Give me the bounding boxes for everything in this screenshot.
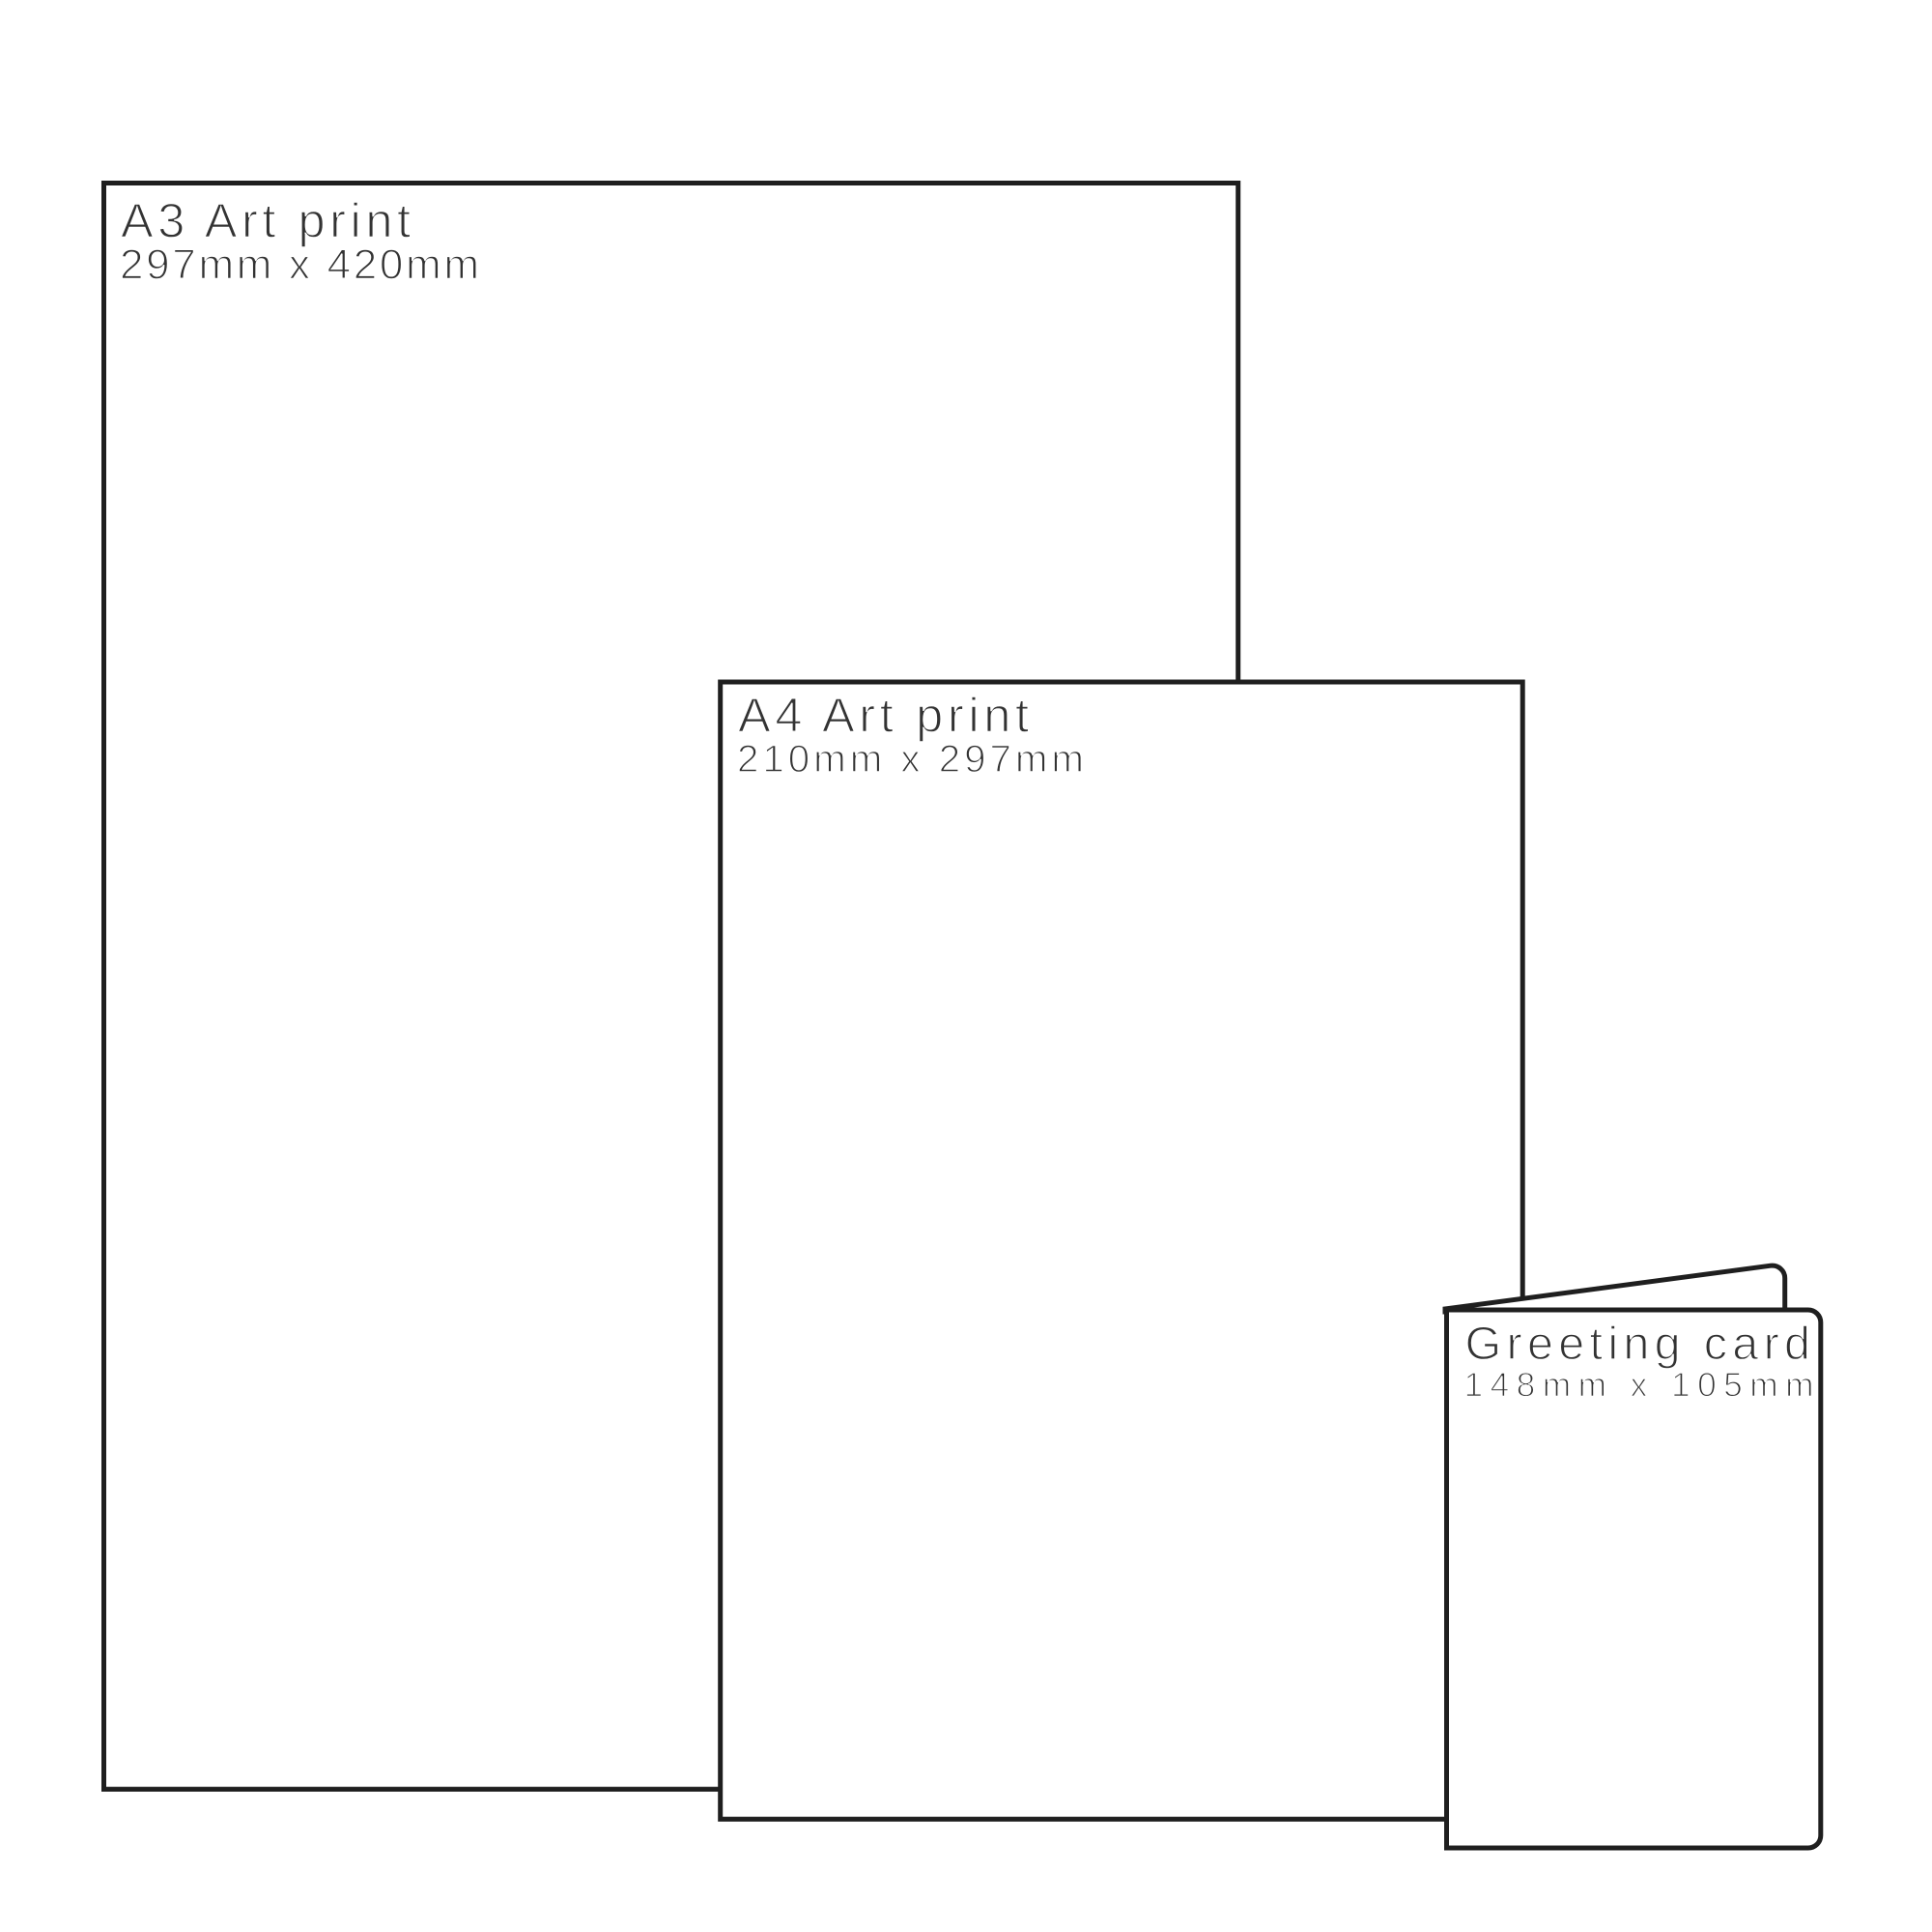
svg-text:297mm x 420mm: 297mm x 420mm	[120, 241, 479, 289]
svg-text:148mm x 105mm: 148mm x 105mm	[1464, 1366, 1814, 1404]
svg-text:A3 Art print: A3 Art print	[121, 193, 411, 248]
svg-text:A4 Art print: A4 Art print	[738, 688, 1029, 743]
svg-text:210mm x 297mm: 210mm x 297mm	[737, 737, 1084, 781]
